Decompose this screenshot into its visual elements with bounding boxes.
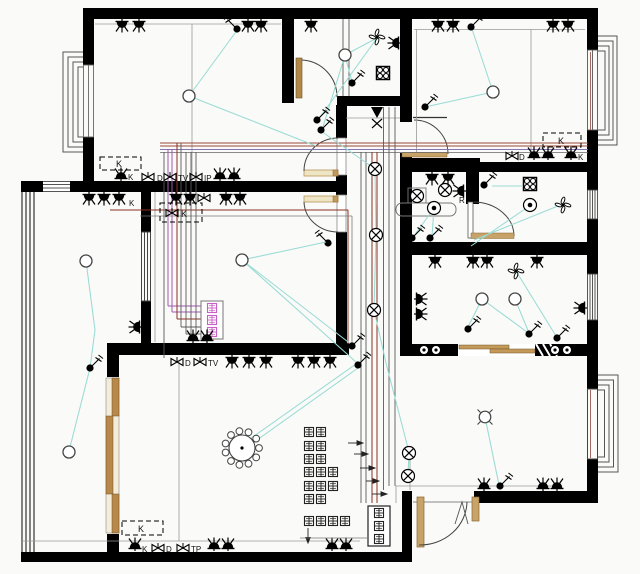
svg-text:K: K xyxy=(138,524,144,534)
svg-text:R: R xyxy=(459,196,465,205)
svg-text:K: K xyxy=(578,153,584,162)
svg-text:IP: IP xyxy=(204,174,212,183)
svg-text:TV: TV xyxy=(208,359,219,368)
svg-text:D: D xyxy=(185,359,191,368)
svg-text:D: D xyxy=(166,545,172,554)
svg-text:K: K xyxy=(558,136,564,146)
svg-text:D: D xyxy=(157,174,163,183)
svg-text:K: K xyxy=(128,173,134,182)
svg-text:K: K xyxy=(181,209,187,219)
svg-text:TV: TV xyxy=(178,174,189,183)
svg-text:TP: TP xyxy=(191,545,201,554)
svg-text:K: K xyxy=(142,545,148,554)
svg-text:K: K xyxy=(116,159,122,169)
svg-text:D: D xyxy=(519,153,525,162)
svg-text:K: K xyxy=(129,199,135,208)
